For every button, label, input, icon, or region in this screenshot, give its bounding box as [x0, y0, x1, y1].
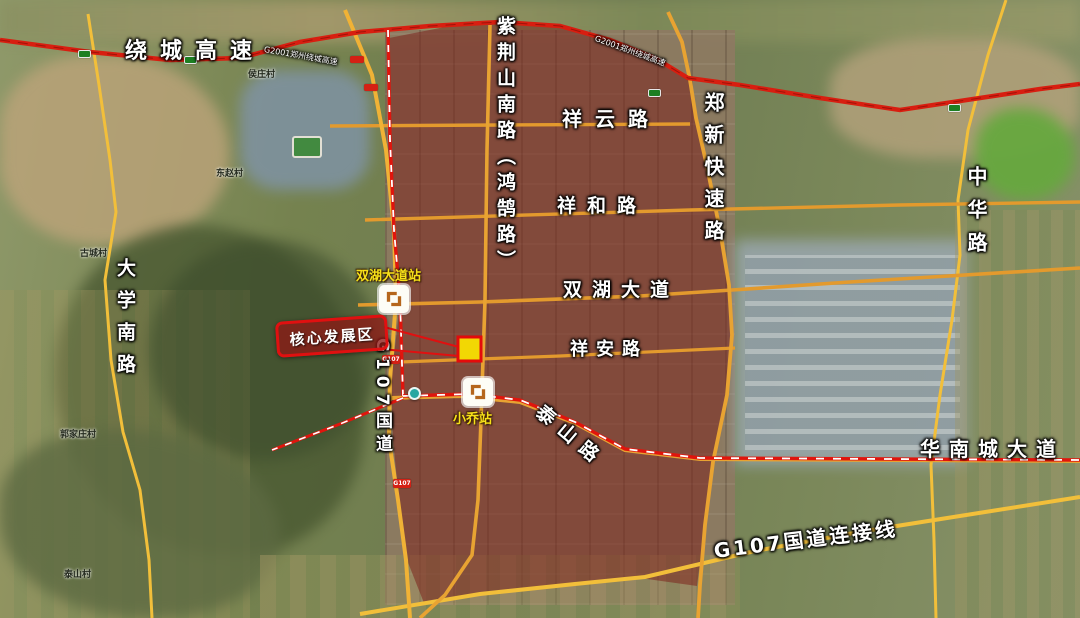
village-label: 古城村	[80, 246, 107, 259]
route-tag-icon	[350, 56, 364, 63]
planning-area-overlay	[388, 22, 732, 603]
xianghe-road-label: 祥和路	[557, 191, 647, 218]
xiangan-road-label: 祥安路	[570, 335, 648, 361]
zhonghua-road-label: 中华路	[962, 166, 991, 265]
village-label: 泰山村	[64, 567, 91, 580]
daxue-south-road-label: 大学南路	[112, 258, 139, 386]
shuanghu-avenue-label: 双湖大道	[563, 275, 679, 302]
huanancheng-avenue-label: 华南城大道	[920, 433, 1065, 462]
expressway-shield-icon	[78, 50, 91, 58]
village-label: 东赵村	[216, 166, 243, 179]
expressway-shield-icon	[948, 104, 961, 112]
expressway-shield-icon	[648, 89, 661, 97]
g107-road-label: G107国道	[370, 338, 395, 457]
metro-station-icon	[379, 285, 409, 313]
core-site-marker	[458, 337, 481, 361]
zijingshan-south-road-label: 紫荆山南路（鸿鹄路）	[492, 16, 519, 276]
zhengxin-expressway-label: 郑新快速路	[699, 92, 728, 252]
core-development-callout-label: 核心发展区	[289, 323, 375, 350]
zhonghua-road-line	[931, 0, 1006, 618]
ring-expressway-label: 绕城高速	[125, 33, 265, 65]
metro-station-icon	[463, 378, 493, 406]
xiangyun-road-label: 祥云路	[562, 103, 661, 132]
village-label: 郭家庄村	[60, 427, 96, 440]
interchange-glyph-icon	[467, 381, 489, 403]
satellite-planning-map: G107 G107 绕城高速 G2001郑州绕城高速 G2001郑州绕城高速 紫…	[0, 0, 1080, 618]
shuanghu-avenue-station-label: 双湖大道站	[356, 265, 421, 284]
xiaoqiao-station-label: 小乔站	[453, 408, 492, 427]
g107-shield: G107	[393, 479, 411, 488]
interchange-glyph-icon	[383, 288, 405, 310]
route-tag-icon	[364, 84, 378, 91]
roads-and-overlay-layer	[0, 0, 1080, 618]
village-label: 侯庄村	[248, 67, 275, 80]
poi-dot-icon	[408, 387, 421, 400]
